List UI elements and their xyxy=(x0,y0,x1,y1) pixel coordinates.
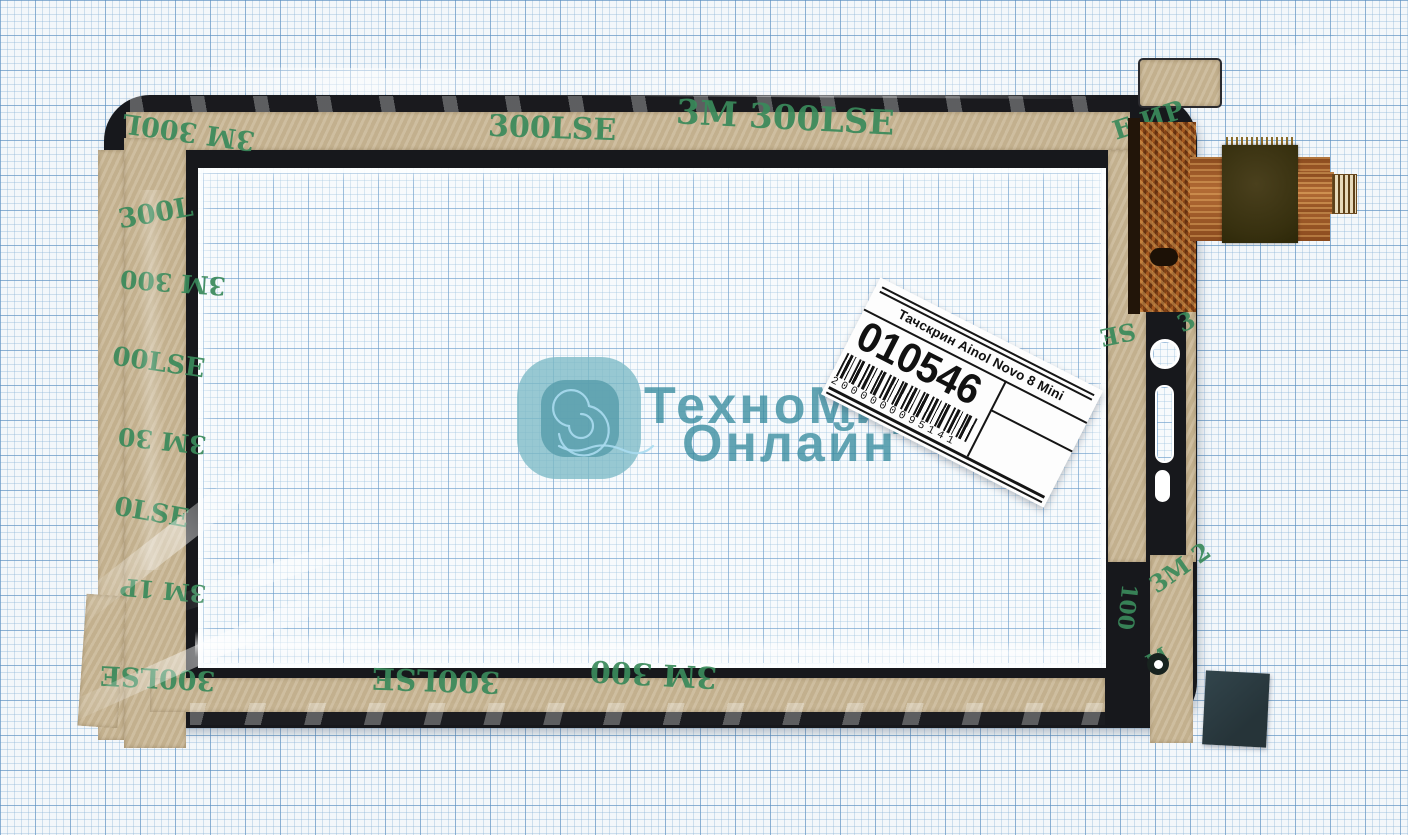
flex-edge-bar xyxy=(1128,118,1140,314)
tape-print-fragment: 300LSE xyxy=(488,112,617,146)
button-slot xyxy=(1155,470,1170,502)
tape-print-fragment: 3M 300LSE xyxy=(675,95,895,140)
film-reflection xyxy=(1235,22,1405,119)
label-rule xyxy=(990,409,1073,453)
tape-strip-top xyxy=(126,112,1130,150)
camera-hole xyxy=(1150,339,1180,369)
tape-print-fragment: 300LSE xyxy=(372,662,501,696)
flex-cable-slot xyxy=(1150,248,1178,266)
frame-top-reflection xyxy=(130,96,1130,113)
watermark-swirl-icon xyxy=(541,380,661,470)
tape-print-fragment: 3M 1P xyxy=(119,574,207,605)
flex-ribbon-neck xyxy=(1298,172,1334,214)
tape-print-fragment: 100 xyxy=(1114,583,1141,631)
product-photo: 3M 300LSE300LSE3M 300L300L3M 30000LSE3M … xyxy=(0,0,1408,835)
speaker-slot xyxy=(1155,385,1174,463)
tape-print-fragment: 3M 300 xyxy=(589,655,718,692)
flex-connector-fingers xyxy=(1332,174,1357,214)
tape-print-fragment: 3M 300 xyxy=(119,266,226,298)
foam-pad-square xyxy=(1202,670,1270,747)
frame-bottom-reflection xyxy=(190,703,1105,725)
watermark-text-line2: Онлайн xyxy=(682,418,897,470)
flex-connector-stiffener xyxy=(1222,145,1298,243)
tape-print-fragment: SE xyxy=(1098,319,1138,350)
flex-cable-vertical xyxy=(1140,122,1196,312)
screw-hole xyxy=(1147,653,1169,675)
tape-print-fragment: 300LSE xyxy=(99,661,216,694)
screw-hole-center xyxy=(1154,660,1163,669)
